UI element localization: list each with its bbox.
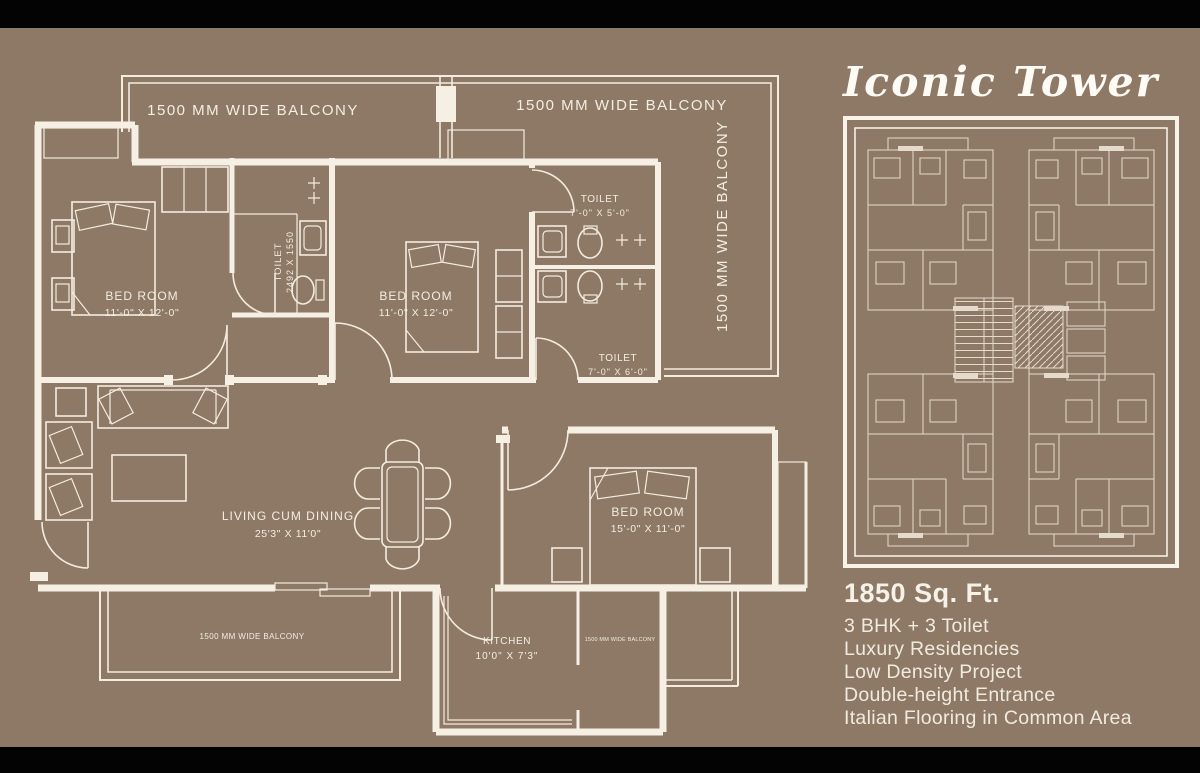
kitchen-dims: 10'0" X 7'3" (476, 651, 539, 662)
toilet3-name: TOILET (599, 353, 637, 364)
living-name: LIVING CUM DINING (222, 509, 354, 523)
toilet3-dims: 7'-0" X 6'-0" (588, 367, 648, 377)
spec-item: Italian Flooring in Common Area (844, 707, 1200, 730)
toilet2-name: TOILET (581, 194, 619, 205)
toilet1-name: TOILET (273, 242, 284, 281)
bedroom1-dims: 11'-0" X 12'-0" (105, 307, 180, 319)
toilet2-fixtures (538, 226, 646, 303)
spec-list: 3 BHK + 3 Toilet Luxury Residencies Low … (844, 615, 1200, 730)
letterbox-top (0, 0, 1200, 28)
kitchen-name: KITCHEN (483, 636, 531, 647)
balcony-bottom-label: 1500 MM WIDE BALCONY (200, 632, 305, 641)
area-label: 1850 Sq. Ft. (844, 578, 1000, 609)
project-title: Iconic Tower (843, 58, 1188, 106)
toilet1-dims: 2492 X 1550 (285, 231, 295, 293)
window-hatches (44, 128, 806, 586)
balcony-rear-label: 1500 MM WIDE BALCONY (585, 637, 656, 643)
tower-key-plan (843, 116, 1179, 568)
spec-item: Double-height Entrance (844, 684, 1200, 707)
bedroom3-name: BED ROOM (611, 505, 684, 519)
balcony-top-right-label: 1500 MM WIDE BALCONY (516, 97, 728, 114)
toilet2-dims: 7'-0" X 5'-0" (570, 208, 630, 218)
apartment-floor-plan: 1500 MM WIDE BALCONY 1500 MM WIDE BALCON… (0, 28, 840, 747)
bedroom2-dims: 11'-0" X 12'-0" (379, 307, 454, 319)
dining-set (355, 440, 451, 569)
balcony-right-label: 1500 MM WIDE BALCONY (714, 120, 731, 332)
tower-units (868, 138, 1154, 546)
door-swings (42, 170, 578, 640)
living-furniture (46, 386, 228, 520)
living-dims: 25'3" X 11'0" (255, 528, 321, 540)
bedroom1-name: BED ROOM (105, 289, 178, 303)
bedroom2-name: BED ROOM (379, 289, 452, 303)
bedroom3-dims: 15'-0" X 11'-0" (611, 523, 686, 535)
floor-plan-page: 1500 MM WIDE BALCONY 1500 MM WIDE BALCON… (0, 0, 1200, 773)
balcony-top-left-label: 1500 MM WIDE BALCONY (147, 102, 359, 119)
spec-item: 3 BHK + 3 Toilet (844, 615, 1200, 638)
letterbox-bottom (0, 747, 1200, 773)
spec-item: Luxury Residencies (844, 638, 1200, 661)
spec-item: Low Density Project (844, 661, 1200, 684)
